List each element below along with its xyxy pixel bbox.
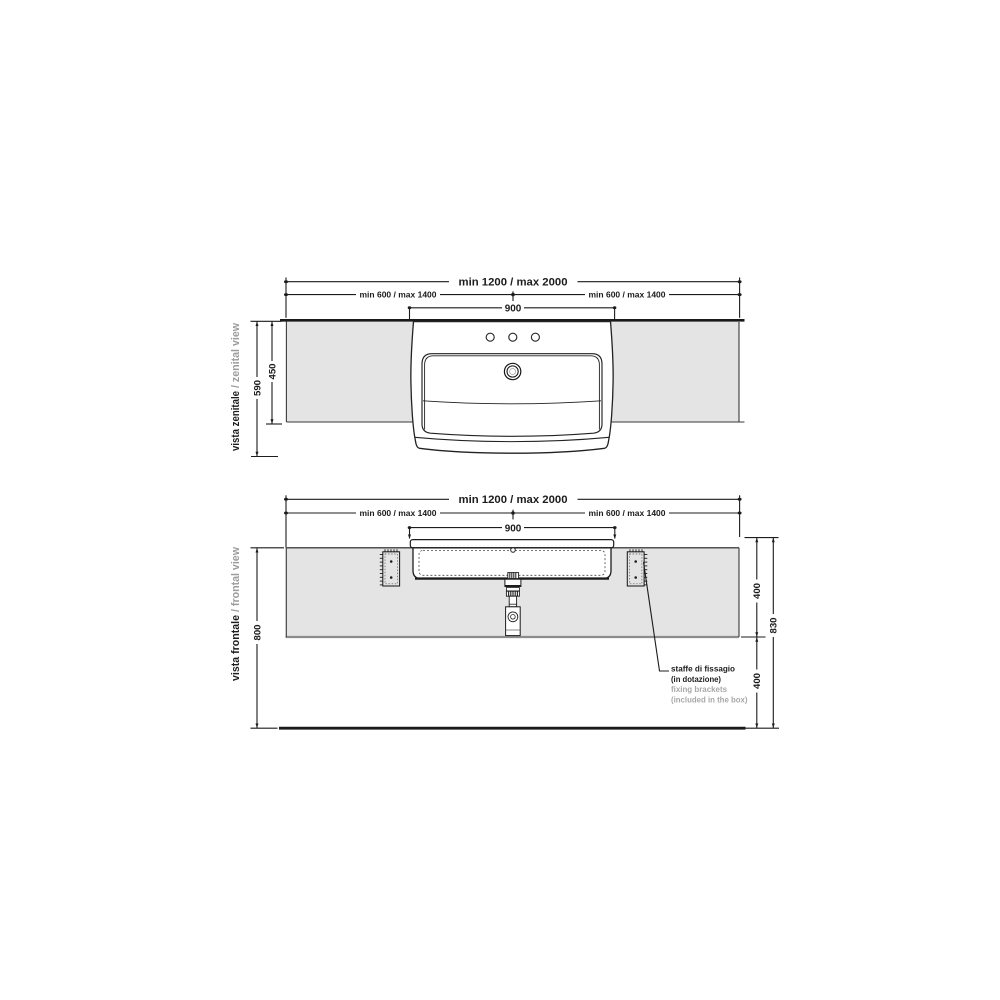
svg-text:/ frontal view: / frontal view (230, 547, 242, 612)
svg-text:/ zenital view: / zenital view (230, 323, 242, 388)
svg-text:min 600 / max 1400: min 600 / max 1400 (589, 290, 666, 300)
svg-text:400: 400 (752, 673, 762, 689)
svg-text:staffe di fissagio: staffe di fissagio (671, 665, 735, 674)
svg-text:vista zenitale: vista zenitale (230, 391, 242, 451)
svg-text:min 1200 / max 2000: min 1200 / max 2000 (459, 494, 568, 506)
svg-text:590: 590 (252, 380, 262, 396)
svg-text:fixing brackets: fixing brackets (671, 685, 727, 694)
svg-text:830: 830 (769, 618, 779, 634)
svg-text:800: 800 (252, 625, 262, 641)
svg-text:900: 900 (505, 304, 522, 315)
svg-text:min 1200 / max 2000: min 1200 / max 2000 (459, 276, 568, 288)
svg-text:900: 900 (505, 523, 522, 534)
svg-text:450: 450 (267, 364, 277, 380)
svg-text:min 600 / max 1400: min 600 / max 1400 (589, 508, 666, 518)
svg-text:(in dotazione): (in dotazione) (671, 675, 721, 684)
svg-text:(included in the box): (included in the box) (671, 696, 748, 705)
svg-text:400: 400 (752, 583, 762, 599)
svg-text:min 600 / max 1400: min 600 / max 1400 (360, 290, 437, 300)
svg-text:vista frontale: vista frontale (230, 615, 242, 681)
svg-text:min 600 / max 1400: min 600 / max 1400 (360, 508, 437, 518)
